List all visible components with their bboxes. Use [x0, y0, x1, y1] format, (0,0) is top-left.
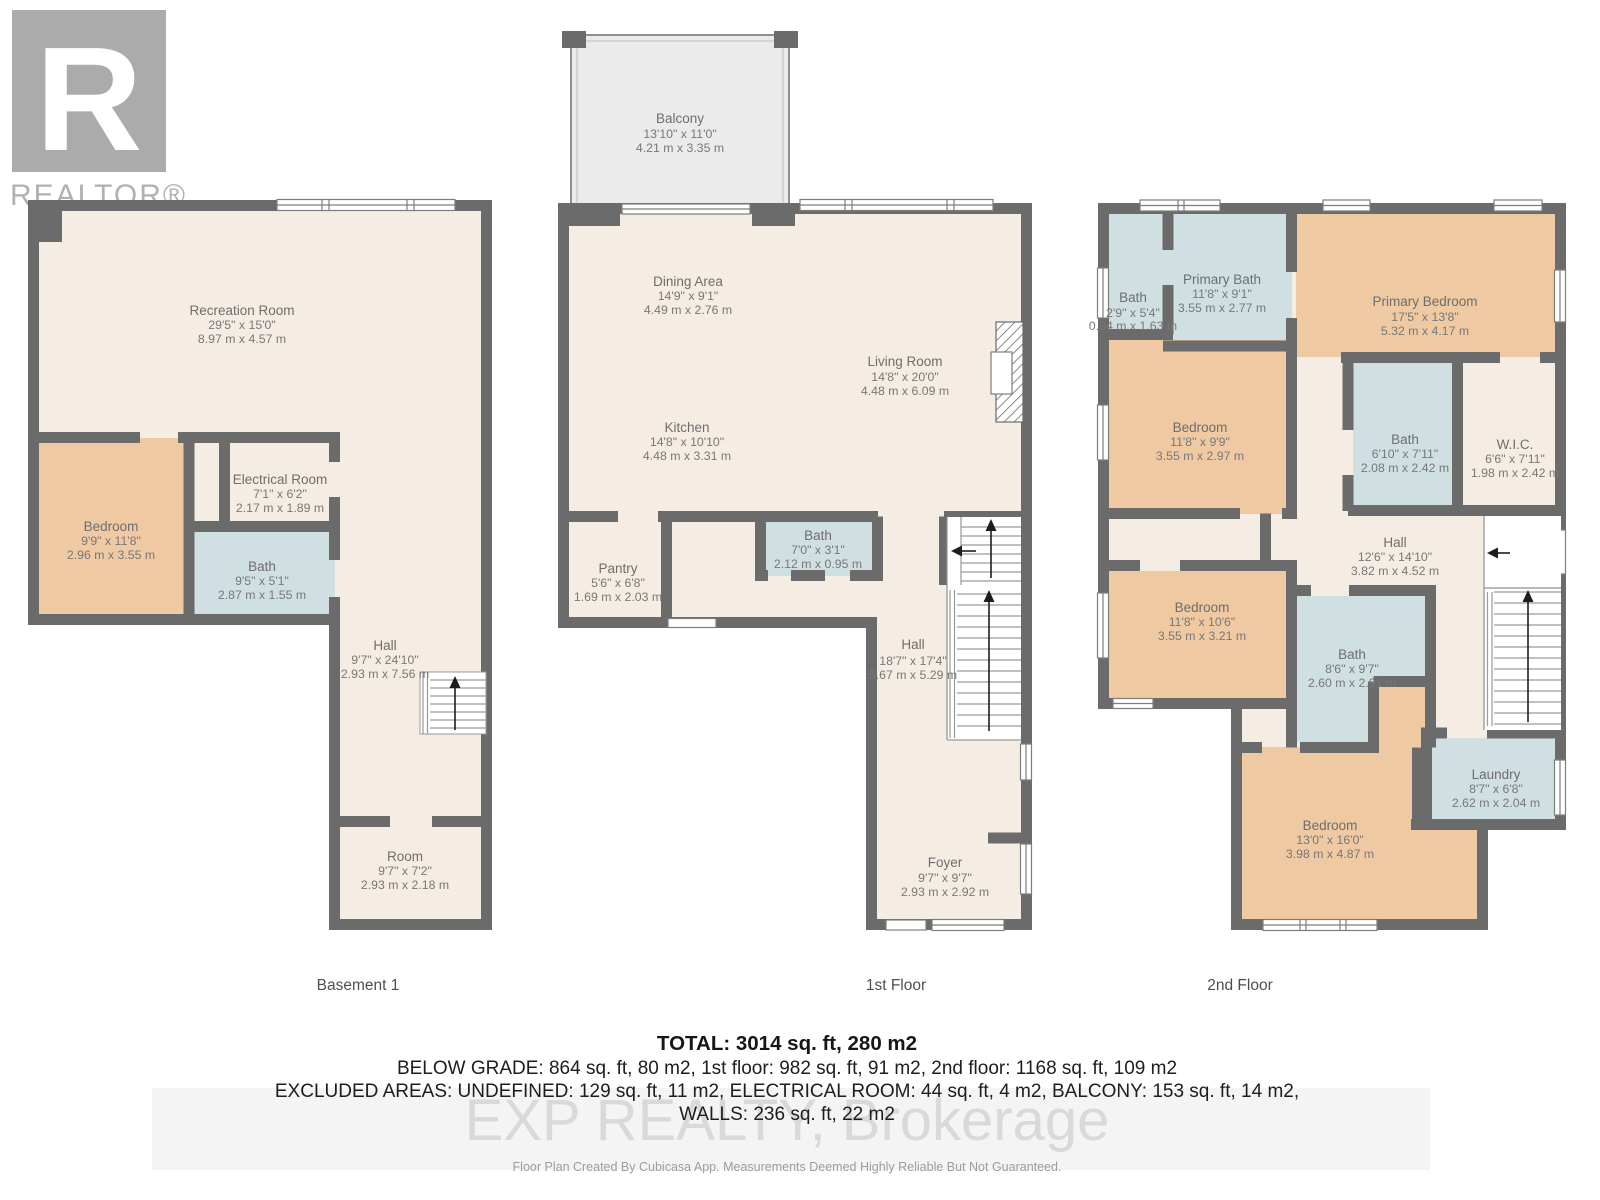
summary-walls: WALLS: 236 sq. ft, 22 m2 [679, 1104, 895, 1125]
label-basement-bath-metric: 2.87 m x 1.55 m [218, 588, 306, 602]
label-kitchen-name: Kitchen [664, 420, 709, 435]
label-basement-room-metric: 2.93 m x 2.18 m [361, 878, 449, 892]
label-second-bedroom3-name: Bedroom [1303, 818, 1358, 833]
label-pantry-imperial: 5'6" x 6'8" [591, 576, 645, 590]
label-dining-name: Dining Area [653, 274, 723, 289]
label-dining-imperial: 14'9" x 9'1" [658, 289, 719, 303]
label-foyer-metric: 2.93 m x 2.92 m [901, 885, 989, 899]
label-second-bath3-imperial: 8'6" x 9'7" [1325, 662, 1379, 676]
label-balcony-metric: 4.21 m x 3.35 m [636, 141, 724, 155]
label-second-bath2-metric: 2.08 m x 2.42 m [1361, 461, 1449, 475]
basement-stairs [420, 672, 486, 734]
label-electrical-room-metric: 2.17 m x 1.89 m [236, 501, 324, 515]
label-laundry-imperial: 8'7" x 6'8" [1469, 782, 1523, 796]
label-living-imperial: 14'8" x 20'0" [871, 370, 938, 384]
label-electrical-room-name: Electrical Room [233, 472, 328, 487]
label-balcony-name: Balcony [656, 111, 704, 126]
label-second-bedroom3-metric: 3.98 m x 4.87 m [1286, 847, 1374, 861]
label-basement-bedroom-imperial: 9'9" x 11'8" [81, 534, 141, 548]
label-basement-bedroom-metric: 2.96 m x 3.55 m [67, 548, 155, 562]
label-second-hall-metric: 3.82 m x 4.52 m [1351, 564, 1439, 578]
label-foyer-imperial: 9'7" x 9'7" [918, 871, 972, 885]
label-recreation-room-metric: 8.97 m x 4.57 m [198, 332, 286, 346]
label-second-hall-imperial: 12'6" x 14'10" [1358, 550, 1432, 564]
label-primary-bedroom-imperial: 17'5" x 13'8" [1391, 310, 1458, 324]
label-kitchen-imperial: 14'8" x 10'10" [650, 435, 724, 449]
label-first-bath-metric: 2.12 m x 0.95 m [774, 557, 862, 571]
floorplan-second-floor: Bath 2'9" x 5'4" 0.84 m x 1.63 m Primary… [1089, 200, 1566, 994]
label-second-bedroom1-name: Bedroom [1173, 420, 1228, 435]
basement-wall-notch [28, 200, 62, 242]
label-laundry-metric: 2.62 m x 2.04 m [1452, 796, 1540, 810]
front-door [886, 920, 926, 930]
label-wic-name: W.I.C. [1497, 437, 1534, 452]
label-second-bedroom1-imperial: 11'8" x 9'9" [1170, 435, 1230, 449]
label-wic-metric: 1.98 m x 2.42 m [1471, 466, 1559, 480]
floorplan-basement: Recreation Room 29'5" x 15'0" 8.97 m x 4… [28, 200, 492, 995]
label-balcony-imperial: 13'10" x 11'0" [643, 127, 716, 141]
label-second-hall-name: Hall [1383, 535, 1406, 550]
balcony-block-right [752, 203, 795, 226]
floorplan-first-floor: Balcony 13'10" x 11'0" 4.21 m x 3.35 m D… [558, 31, 1032, 994]
label-second-bath3-name: Bath [1338, 647, 1366, 662]
label-first-hall-imperial: 18'7" x 17'4" [879, 654, 946, 668]
label-second-bath-small-name: Bath [1119, 290, 1147, 305]
summary-floors: BELOW GRADE: 864 sq. ft, 80 m2, 1st floo… [397, 1058, 1177, 1079]
label-primary-bath-name: Primary Bath [1183, 272, 1261, 287]
label-primary-bedroom-name: Primary Bedroom [1372, 294, 1477, 309]
fireplace-box [991, 352, 1012, 394]
label-second-bath-small-imperial: 2'9" x 5'4" [1106, 306, 1160, 320]
label-wic-imperial: 6'6" x 7'11" [1485, 452, 1545, 466]
summary-excluded: EXCLUDED AREAS: UNDEFINED: 129 sq. ft, 1… [275, 1081, 1299, 1102]
label-recreation-room-name: Recreation Room [189, 303, 294, 318]
second-floor-stairs [1484, 516, 1561, 730]
label-second-bedroom2-imperial: 11'8" x 10'6" [1169, 615, 1236, 629]
label-living-name: Living Room [867, 354, 942, 369]
label-recreation-room-imperial: 29'5" x 15'0" [208, 318, 275, 332]
label-basement-room-imperial: 9'7" x 7'2" [378, 864, 432, 878]
first-floor-stairs [947, 517, 1021, 740]
label-second-bedroom2-metric: 3.55 m x 3.21 m [1158, 629, 1246, 643]
label-dining-metric: 4.49 m x 2.76 m [644, 303, 732, 317]
label-electrical-room-imperial: 7'1" x 6'2" [253, 487, 307, 501]
label-second-bedroom2-name: Bedroom [1175, 600, 1230, 615]
realtor-logo-letter: R [36, 17, 143, 182]
label-foyer-name: Foyer [928, 855, 963, 870]
label-pantry-metric: 1.69 m x 2.03 m [574, 590, 662, 604]
balcony-post-right [774, 31, 798, 48]
label-basement-bedroom-name: Bedroom [84, 519, 139, 534]
label-pantry-name: Pantry [598, 561, 637, 576]
label-laundry-name: Laundry [1472, 767, 1521, 782]
label-basement-hall-name: Hall [373, 638, 396, 653]
label-second-bath3-metric: 2.60 m x 2.91 m [1308, 676, 1396, 690]
label-first-hall-metric: 5.67 m x 5.29 m [869, 668, 957, 682]
basement-floor-label: Basement 1 [317, 977, 400, 994]
balcony-block-left [562, 203, 620, 226]
label-second-bath2-name: Bath [1391, 432, 1419, 447]
label-second-bedroom3-imperial: 13'0" x 16'0" [1296, 833, 1363, 847]
label-second-bath2-imperial: 6'10" x 7'11" [1372, 447, 1439, 461]
label-first-hall-name: Hall [901, 637, 924, 652]
summary-total: TOTAL: 3014 sq. ft, 280 m2 [657, 1032, 917, 1055]
label-first-bath-imperial: 7'0" x 3'1" [791, 543, 845, 557]
disclaimer-text: Floor Plan Created By Cubicasa App. Meas… [513, 1160, 1062, 1174]
summary-block: EXP REALTY, Brokerage TOTAL: 3014 sq. ft… [152, 1032, 1430, 1174]
label-second-bedroom1-metric: 3.55 m x 2.97 m [1156, 449, 1244, 463]
label-second-bath-small-metric: 0.84 m x 1.63 m [1089, 319, 1177, 333]
label-primary-bedroom-metric: 5.32 m x 4.17 m [1381, 324, 1469, 338]
label-primary-bath-imperial: 11'8" x 9'1" [1192, 287, 1252, 301]
label-primary-bath-metric: 3.55 m x 2.77 m [1178, 301, 1266, 315]
balcony-post-left [562, 31, 586, 48]
label-basement-room-name: Room [387, 849, 423, 864]
realtor-logo: R REALTOR® [10, 10, 187, 212]
floor-plan-canvas: R REALTOR® Recreation Room 29'5" x 15'0"… [0, 0, 1600, 1200]
first-floor-label: 1st Floor [866, 977, 926, 994]
label-basement-bath-imperial: 9'5" x 5'1" [235, 574, 289, 588]
second-stairs-bg [1484, 516, 1561, 730]
label-basement-hall-metric: 2.93 m x 7.56 m [341, 667, 429, 681]
second-floor-label: 2nd Floor [1207, 977, 1272, 994]
label-first-bath-name: Bath [804, 528, 832, 543]
label-kitchen-metric: 4.48 m x 3.31 m [643, 449, 731, 463]
label-basement-hall-imperial: 9'7" x 24'10" [351, 653, 418, 667]
rear-door [668, 619, 716, 628]
floor-plan-page: R REALTOR® Recreation Room 29'5" x 15'0"… [0, 0, 1600, 1200]
label-living-metric: 4.48 m x 6.09 m [861, 384, 949, 398]
label-basement-bath-name: Bath [248, 559, 276, 574]
